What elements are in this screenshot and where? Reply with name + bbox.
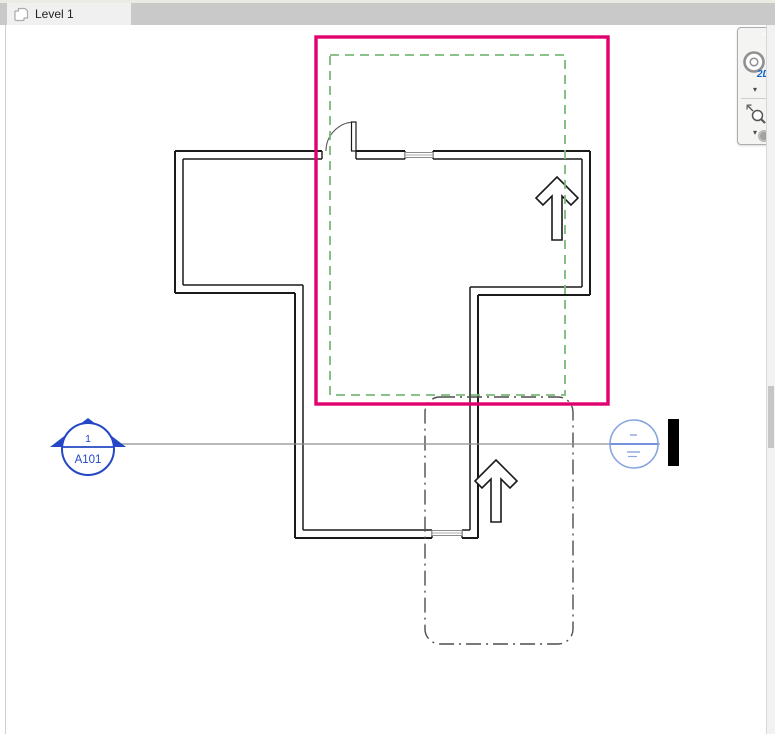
vertical-scrollbar[interactable] [766, 25, 775, 734]
zoom-region-icon [744, 102, 768, 126]
view-tab-level1[interactable]: Level 1 [7, 3, 131, 25]
view-tab-bar: Level 1 [0, 3, 775, 25]
section-sheet-number: A101 [75, 454, 102, 466]
section-tail-marker[interactable] [610, 420, 658, 468]
floor-plan-icon [14, 7, 29, 22]
section-head-circle [62, 423, 114, 475]
view-border [5, 25, 6, 734]
wall-outline[interactable] [175, 151, 590, 538]
navbar-separator [741, 98, 769, 99]
up-arrow-north[interactable] [536, 177, 578, 240]
chevron-down-icon: ▾ [753, 85, 757, 94]
plan-drawing: 1 A101 [0, 0, 775, 734]
steering-wheel-button[interactable]: 2D [742, 49, 769, 79]
chevron-down-icon: ▾ [753, 128, 757, 137]
section-head-marker[interactable]: 1 A101 [50, 418, 126, 475]
steering-wheel-2d-icon: 2D [742, 49, 769, 79]
scrollbar-thumb[interactable] [768, 386, 774, 448]
section-line-end-bar[interactable] [668, 419, 679, 466]
view-tab-label: Level 1 [35, 7, 74, 21]
annotation-crop-boundary[interactable] [330, 55, 565, 395]
window-top[interactable] [405, 153, 433, 158]
window-bottom[interactable] [432, 531, 462, 536]
zoom-button[interactable] [744, 102, 768, 126]
door-leaf [352, 122, 357, 151]
section-detail-number: 1 [85, 433, 91, 445]
up-arrow-south[interactable] [475, 460, 517, 522]
